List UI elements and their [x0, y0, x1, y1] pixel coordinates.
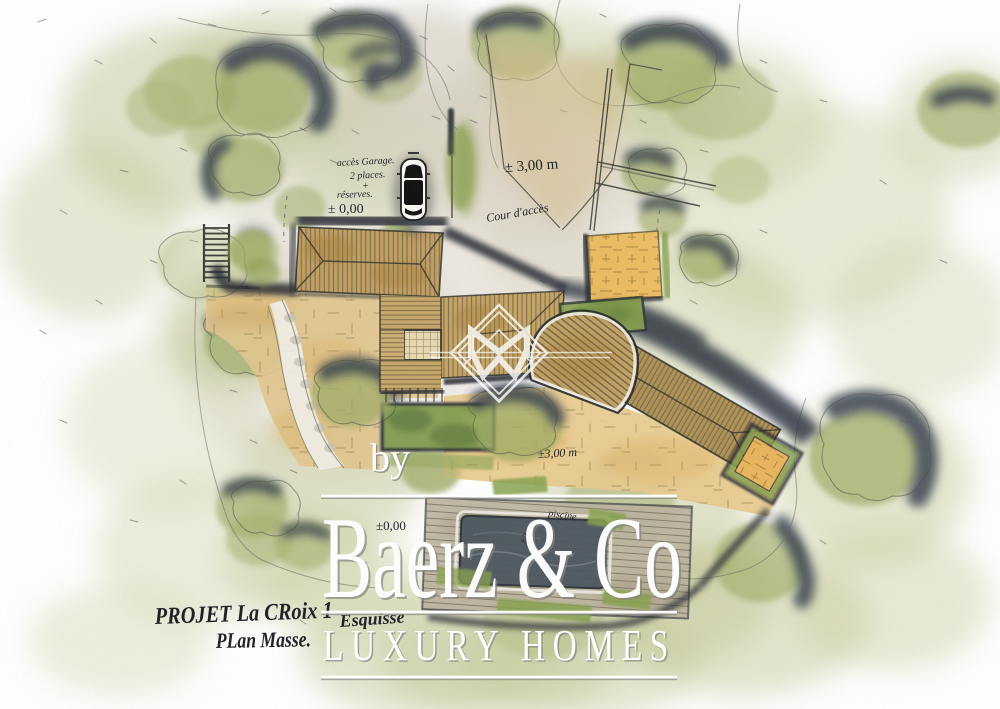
svg-text:Baerz & Co: Baerz & Co [322, 494, 682, 623]
svg-text:LUXURY HOMES: LUXURY HOMES [323, 621, 676, 670]
svg-text:by: by [370, 435, 410, 480]
